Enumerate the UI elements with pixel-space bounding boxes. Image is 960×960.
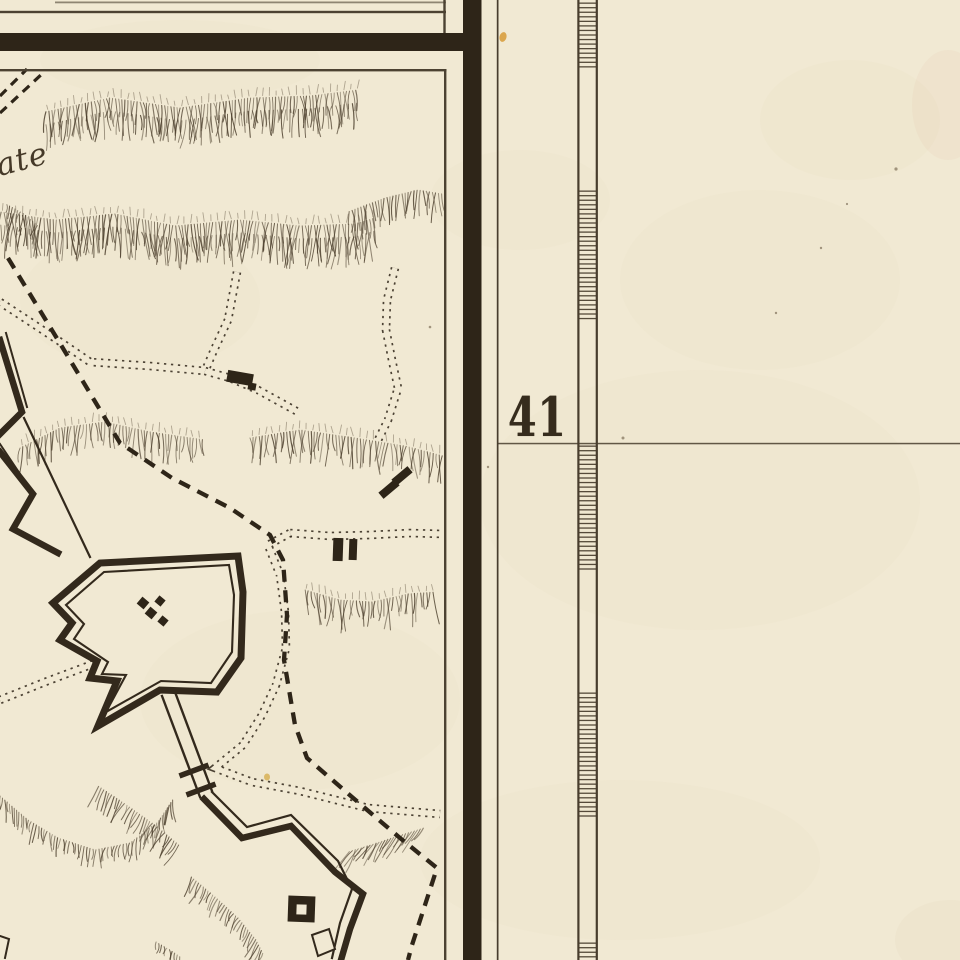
border-bar-horizontal — [0, 33, 463, 51]
engraved-map — [0, 0, 960, 960]
border-bar-vertical — [463, 0, 482, 960]
neatline — [497, 0, 499, 960]
latitude-label: 41 — [508, 390, 567, 444]
building-mark — [333, 538, 344, 561]
building-courtyard — [296, 904, 306, 914]
building-mark — [247, 382, 256, 390]
building-mark — [349, 539, 358, 560]
foxing-stain — [264, 774, 270, 781]
map-sheet: 41 ate — [0, 0, 960, 960]
